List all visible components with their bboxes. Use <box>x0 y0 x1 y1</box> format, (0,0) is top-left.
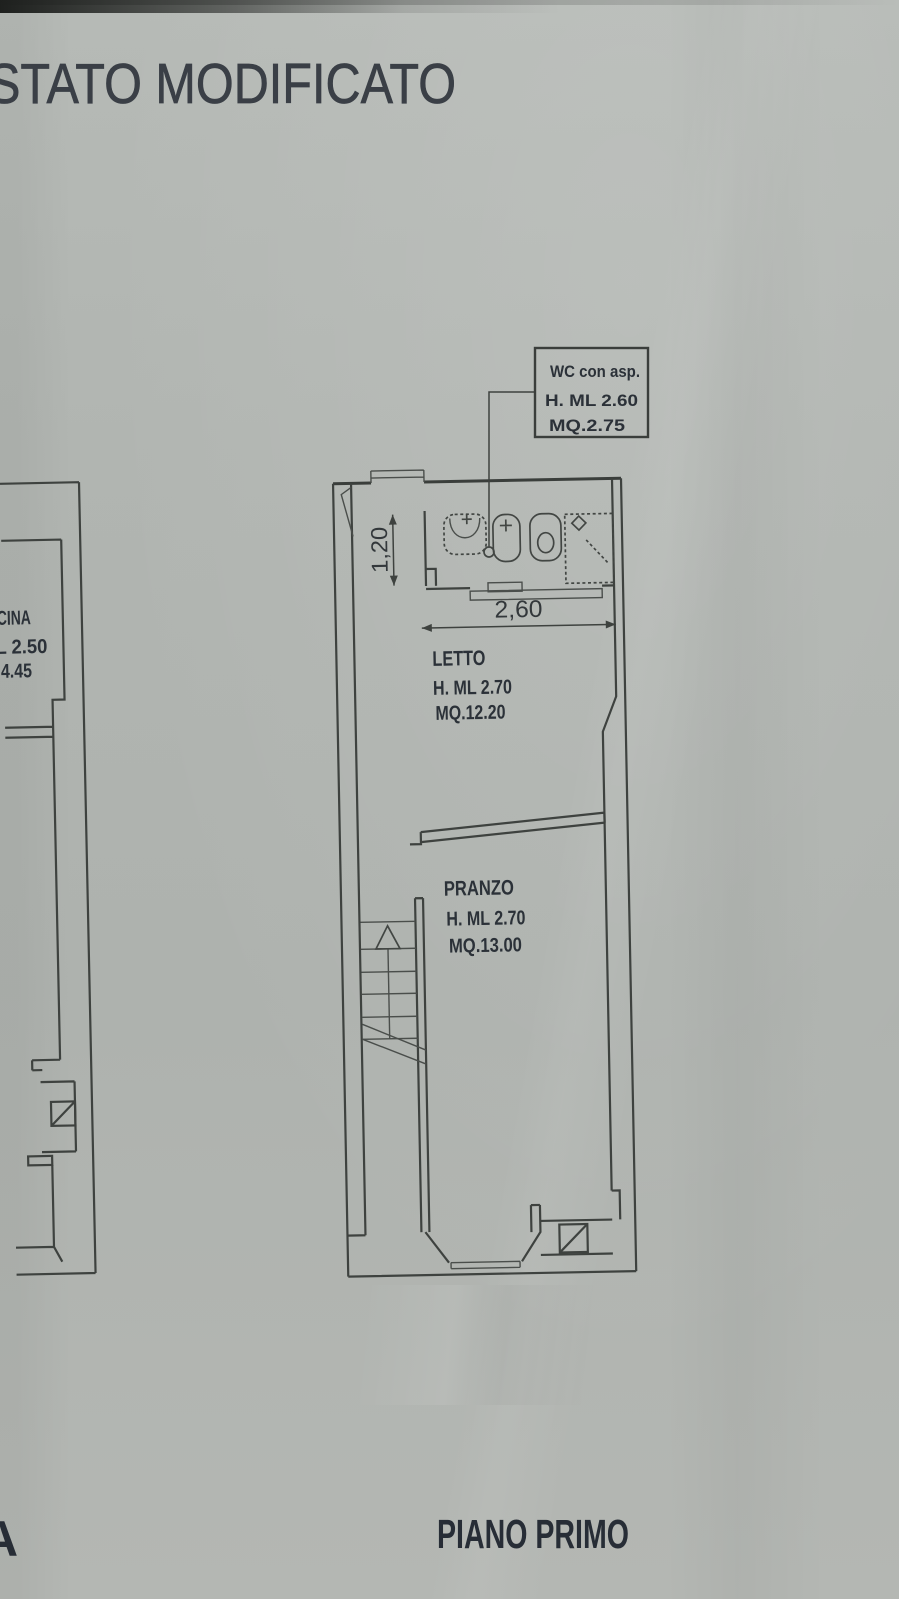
letto-pranzo-partition <box>409 813 605 845</box>
room-label-cucina-partial: CINA <box>0 607 31 630</box>
top-wall <box>333 478 621 484</box>
callout-height: H. ML 2.60 <box>545 391 638 410</box>
dimension-bathroom-width: 2,60 <box>421 594 616 632</box>
callout-title: WC con asp. <box>550 362 640 381</box>
dimension-arrow-up <box>389 515 397 525</box>
room-height-cucina-partial: L 2.50 <box>0 636 48 659</box>
bidet <box>493 514 521 562</box>
bidet-tap-icon <box>500 519 512 531</box>
adjacent-shaft-diagonal <box>51 1101 75 1125</box>
dimension-value-1-20: 1,20 <box>366 527 393 573</box>
room-area-pranzo: MQ.13.00 <box>449 934 522 957</box>
room-height-letto: H. ML 2.70 <box>433 676 512 700</box>
corner-partial-letter: A <box>0 1511 18 1567</box>
callout-leader-line <box>489 392 535 547</box>
washbasin-bowl <box>450 518 480 538</box>
bottom-left-splay <box>425 1232 449 1263</box>
toilet-outline <box>530 513 562 561</box>
left-inner-wall <box>333 483 365 1235</box>
adjacent-unit-wall-tab <box>28 1156 52 1166</box>
dimension-arrow-down <box>390 576 398 586</box>
dimension-bathroom-depth: 1,20 <box>366 515 398 587</box>
toilet-bowl <box>538 533 554 553</box>
bottom-window <box>451 1261 520 1268</box>
shower-head-icon <box>572 516 586 530</box>
washbasin <box>444 514 487 555</box>
niche-walls <box>540 1190 621 1255</box>
adjacent-unit-partial-plan: CINA L 2.50 4.45 <box>0 482 96 1275</box>
stair-direction-arrow <box>376 926 400 949</box>
washbasin-tap-icon <box>462 514 472 524</box>
callout-area: MQ.2.75 <box>549 416 625 435</box>
shaft-diagonal <box>559 1224 588 1253</box>
stair-center-line <box>388 949 390 1039</box>
top-window <box>371 470 424 483</box>
dimension-line-horizontal <box>422 624 616 628</box>
shower <box>565 513 614 583</box>
dimension-line-vertical <box>393 515 394 586</box>
room-area-letto: MQ.12.20 <box>435 701 505 724</box>
room-height-pranzo: H. ML 2.70 <box>446 907 525 931</box>
stair-right-wall <box>415 898 429 1232</box>
main-unit-plan: 1,20 2,60 LETTO H. ML 2.70 MQ.12.20 PRAN… <box>333 466 636 1276</box>
dimension-arrow-left <box>422 624 432 632</box>
page-title: STATO MODIFICATO <box>0 52 456 116</box>
callout-leader-dot <box>484 547 494 557</box>
scanned-floor-plan-page: STATO MODIFICATO CINA L 2.50 4.45 <box>0 0 899 1599</box>
shower-drain-line <box>586 539 608 563</box>
floor-label: PIANO PRIMO <box>437 1511 629 1557</box>
dimension-value-2-60: 2,60 <box>494 596 543 624</box>
bath-left-wall <box>425 511 436 586</box>
toilet <box>530 513 562 561</box>
floor-plan-drawing: STATO MODIFICATO CINA L 2.50 4.45 <box>0 0 899 1599</box>
room-label-letto: LETTO <box>432 647 485 671</box>
staircase <box>360 898 429 1233</box>
room-label-pranzo: PRANZO <box>444 876 514 900</box>
room-area-cucina-partial: 4.45 <box>1 660 32 683</box>
